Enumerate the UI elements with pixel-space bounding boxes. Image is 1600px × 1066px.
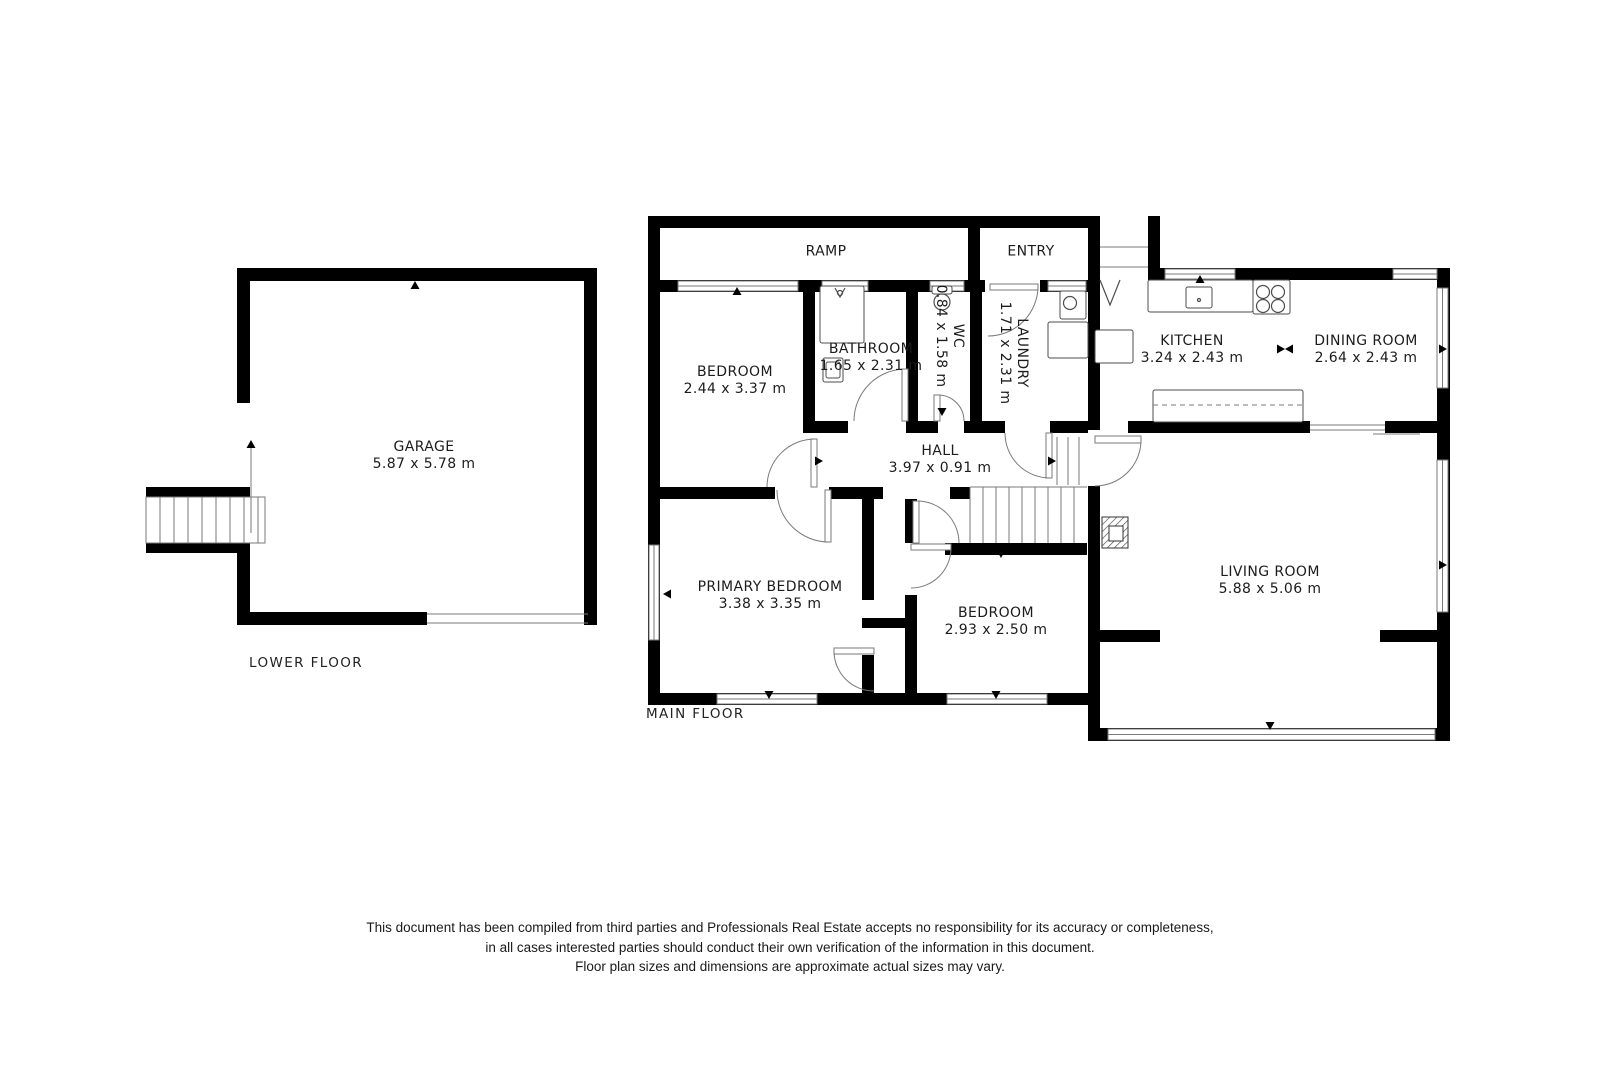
disclaimer-line: in all cases interested parties should c… [240,938,1340,958]
direction-tick [815,457,823,466]
room-label-ramp: RAMP [806,244,847,261]
disclaimer-line: This document has been compiled from thi… [240,918,1340,938]
door-leaf [990,284,1038,290]
door-leaf [1095,436,1141,443]
lower-floor-label: LOWER FLOOR [249,655,363,671]
wall [803,292,815,433]
wall [1100,630,1160,642]
room-label-entry: ENTRY [1007,244,1054,261]
fixture [1153,390,1303,422]
wall [1050,421,1088,433]
room-dims: 2.93 x 2.50 m [945,622,1048,639]
room-name: WC [949,285,966,388]
room-name: GARAGE [373,439,476,456]
direction-tick [411,281,420,289]
room-name: BEDROOM [684,364,787,381]
room-label-primary-bedroom: PRIMARY BEDROOM3.38 x 3.35 m [698,579,843,613]
wall [237,612,427,625]
room-name: ENTRY [1007,244,1054,261]
wall [862,618,917,628]
wall [648,487,775,499]
room-dims: 0.84 x 1.58 m [932,285,949,388]
wall [146,487,250,497]
direction-tick [247,440,256,448]
wall [906,421,938,433]
staircase [146,497,265,543]
room-name: DINING ROOM [1314,333,1418,350]
door-swing-arc [777,490,829,542]
wall [950,487,970,499]
wall [968,216,980,282]
room-name: RAMP [806,244,847,261]
room-label-wc: WC0.84 x 1.58 m [932,285,966,388]
room-dims: 5.87 x 5.78 m [373,456,476,473]
room-name: LIVING ROOM [1219,564,1322,581]
fixture [1095,330,1133,363]
door-leaf [911,544,951,550]
room-dims: 2.64 x 2.43 m [1314,350,1418,367]
room-label-bedroom: BEDROOM2.44 x 3.37 m [684,364,787,398]
room-label-kitchen: KITCHEN3.24 x 2.43 m [1141,333,1244,367]
wall [1128,421,1310,433]
floor-plan-canvas [0,0,1600,1066]
wall [829,487,883,499]
room-label-laundry: LAUNDRY1.71 x 2.31 m [996,302,1030,405]
door-swing-arc [854,369,906,421]
door-swing-arc [1095,440,1141,486]
fixture-detail [1100,280,1120,305]
wall [945,543,1087,555]
wall [584,268,597,625]
wall [1385,421,1437,433]
room-label-bedroom2: BEDROOM2.93 x 2.50 m [945,605,1048,639]
disclaimer-text: This document has been compiled from thi… [240,918,1340,977]
wall [970,292,982,421]
wall [648,216,1100,228]
wall [237,268,250,403]
wall [803,421,848,433]
fireplace-opening [1109,526,1123,541]
room-dims: 1.65 x 2.31 m [820,358,923,375]
door-swing-arc [1005,433,1050,478]
fixture [1048,322,1088,358]
disclaimer-line: Floor plan sizes and dimensions are appr… [240,957,1340,977]
main-floor-label: MAIN FLOOR [646,706,745,722]
room-name: HALL [889,443,992,460]
room-dims: 3.97 x 0.91 m [889,460,992,477]
fixture [1186,287,1212,308]
room-dims: 2.44 x 3.37 m [684,381,787,398]
door-swing-arc [767,439,815,487]
wall [237,268,597,281]
direction-tick [1285,345,1293,354]
door-leaf [1046,433,1052,478]
room-label-dining: DINING ROOM2.64 x 2.43 m [1314,333,1418,367]
wall [1088,216,1100,430]
wall [146,543,250,553]
room-dims: 3.24 x 2.43 m [1141,350,1244,367]
direction-tick [663,590,671,599]
room-label-garage: GARAGE5.87 x 5.78 m [373,439,476,473]
floorplan-page: GARAGE5.87 x 5.78 m RAMP ENTRY BEDROOM2.… [0,0,1600,1066]
room-name: BEDROOM [945,605,1048,622]
room-name: PRIMARY BEDROOM [698,579,843,596]
room-dims: 3.38 x 3.35 m [698,596,843,613]
room-dims: 1.71 x 2.31 m [996,302,1013,405]
wall [862,655,874,693]
room-label-bathroom: BATHROOM1.65 x 2.31 m [820,341,923,375]
room-name: KITCHEN [1141,333,1244,350]
wall [237,552,250,612]
room-label-living-room: LIVING ROOM5.88 x 5.06 m [1219,564,1322,598]
room-label-hall: HALL3.97 x 0.91 m [889,443,992,477]
wall [1088,486,1100,740]
room-dims: 5.88 x 5.06 m [1219,581,1322,598]
door-leaf [913,501,919,543]
door-leaf [902,369,908,421]
room-name: LAUNDRY [1013,302,1030,405]
direction-tick [1277,345,1285,354]
door-leaf [834,648,874,654]
wall [905,595,917,693]
room-name: BATHROOM [820,341,923,358]
wall [964,421,1005,433]
door-leaf [825,490,831,542]
wall [1380,630,1437,642]
wall [862,499,874,600]
door-swing-arc [917,501,959,543]
